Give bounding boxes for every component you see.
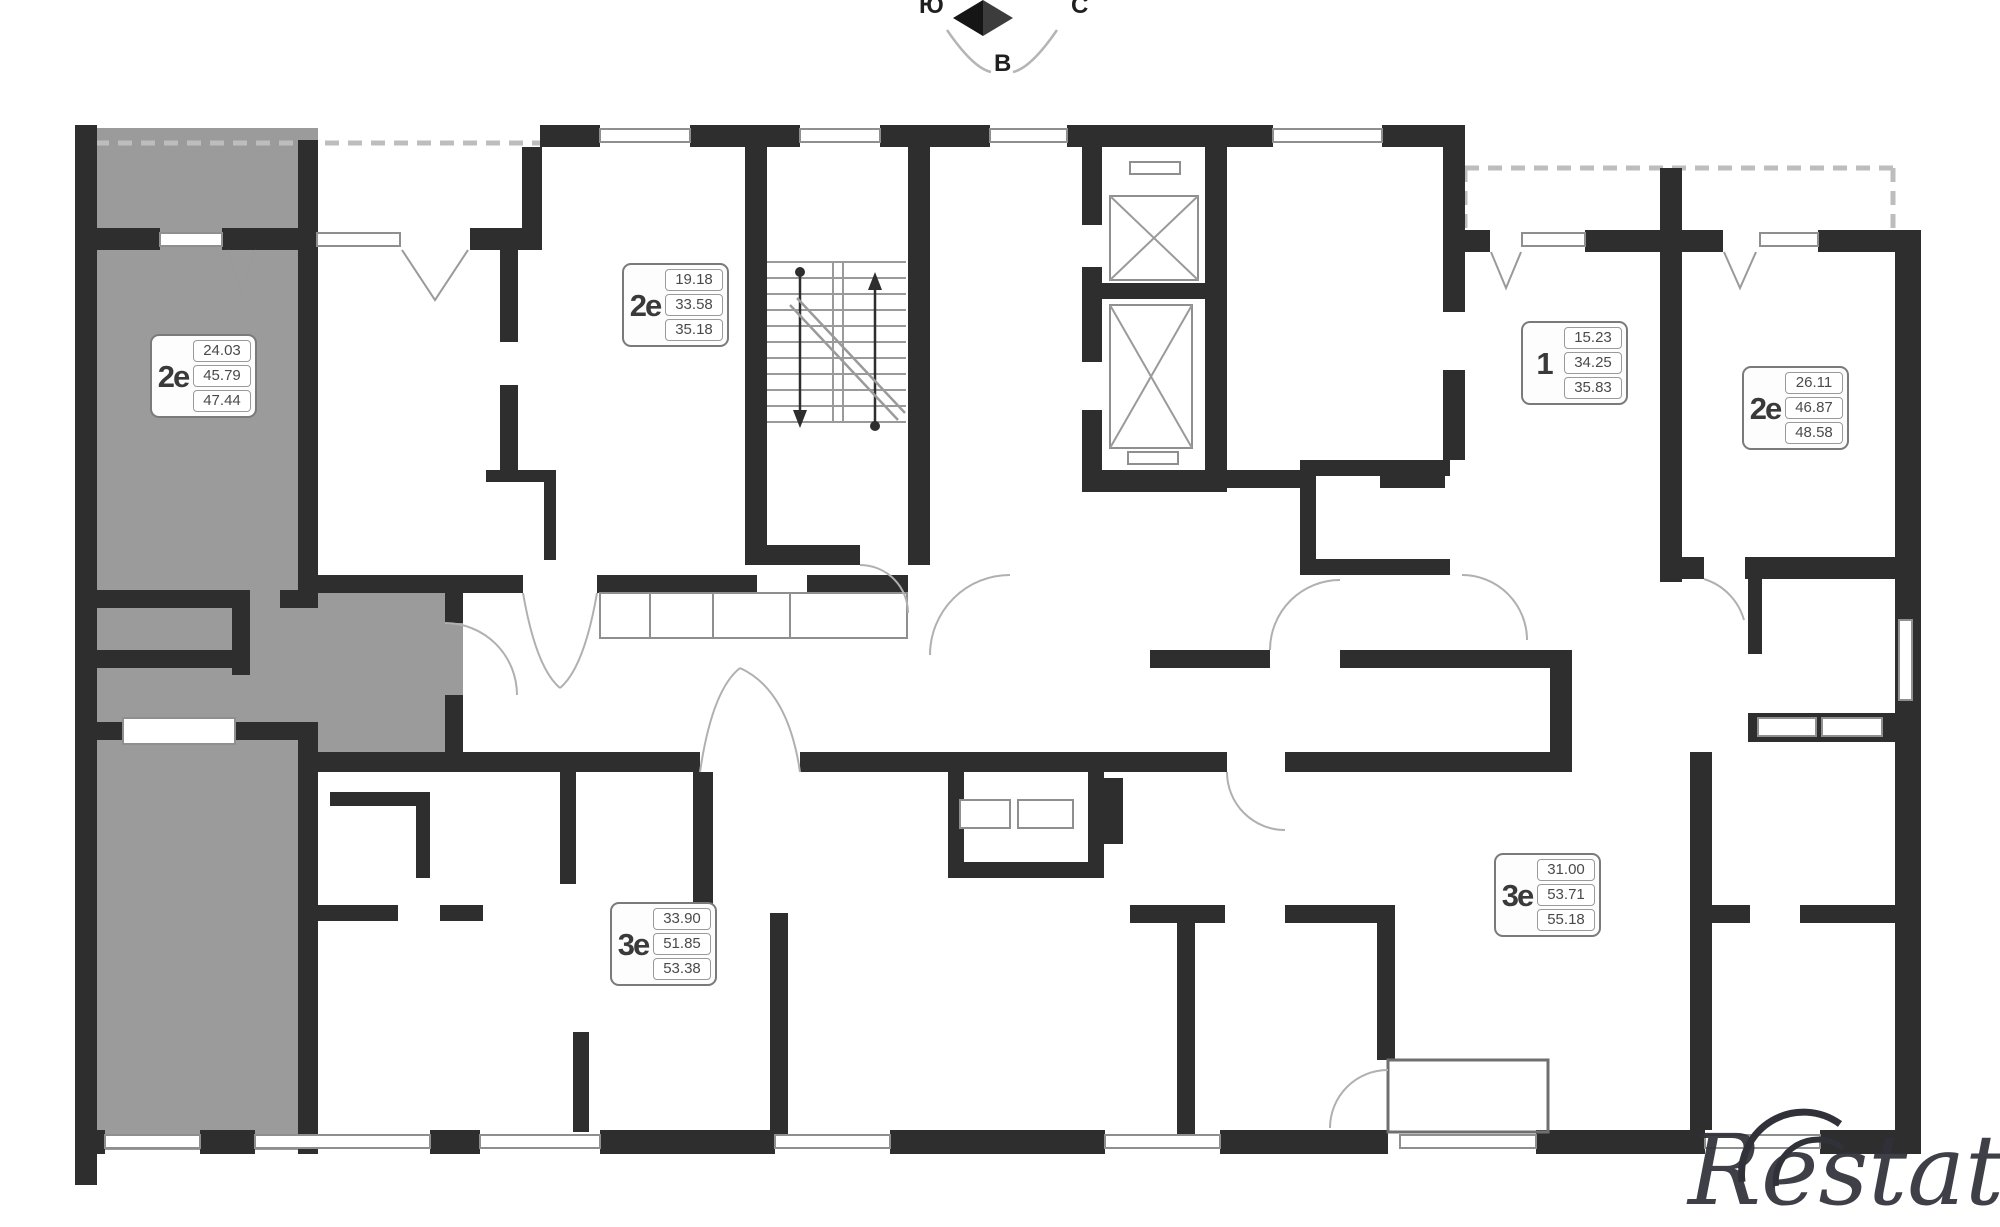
apartment-label-far-right: 2е 26.11 46.87 48.58 [1742,366,1849,450]
apartment-type: 2е [156,361,190,392]
floor-plan-page: Ю С В 2е 24.03 45.79 47.44 2е 19.18 33.5… [0,0,2000,1223]
apartment-type: 3е [1500,880,1534,911]
area-value: 34.25 [1564,352,1622,374]
area-value: 35.18 [665,319,723,341]
staircase [767,262,906,431]
apartment-areas: 26.11 46.87 48.58 [1785,372,1843,444]
apartment-label-top-right: 1 15.23 34.25 35.83 [1521,321,1628,405]
area-value: 48.58 [1785,422,1843,444]
area-value: 53.38 [653,958,711,980]
compass-label-east: В [994,50,1011,78]
apartment-areas: 19.18 33.58 35.18 [665,269,723,341]
apartment-label-bottom-right: 3е 31.00 53.71 55.18 [1494,853,1601,937]
area-value: 46.87 [1785,397,1843,419]
apartment-type: 1 [1527,348,1561,379]
area-value: 53.71 [1537,884,1595,906]
area-value: 31.00 [1537,859,1595,881]
apartment-type: 2е [1748,393,1782,424]
area-value: 55.18 [1537,909,1595,931]
apartment-areas: 24.03 45.79 47.44 [193,340,251,412]
elevator-shaft-small [1110,162,1198,280]
compass-label-south: Ю [919,0,944,20]
area-value: 33.90 [653,908,711,930]
compass: Ю С В [895,0,1115,86]
apartment-label-top-middle: 2е 19.18 33.58 35.18 [622,263,729,347]
elevator-shafts [1110,162,1198,464]
area-value: 35.83 [1564,377,1622,399]
recessed-balcony [1388,1060,1548,1132]
area-value: 15.23 [1564,327,1622,349]
area-value: 45.79 [193,365,251,387]
area-value: 19.18 [665,269,723,291]
area-value: 24.03 [193,340,251,362]
area-value: 26.11 [1785,372,1843,394]
apartment-label-bottom-middle: 3е 33.90 51.85 53.38 [610,902,717,986]
compass-label-north: С [1071,0,1088,20]
area-value: 47.44 [193,390,251,412]
stair-steps [767,262,906,422]
apartment-areas: 33.90 51.85 53.38 [653,908,711,980]
apartment-type: 3е [616,929,650,960]
balcony-parapet-dashes [95,143,1893,228]
apartment-type: 2е [628,290,662,321]
highlighted-apartment-fill [75,128,463,1150]
area-value: 33.58 [665,294,723,316]
apartment-areas: 15.23 34.25 35.83 [1564,327,1622,399]
apartment-areas: 31.00 53.71 55.18 [1537,859,1595,931]
area-value: 51.85 [653,933,711,955]
floor-plan-drawing [0,0,2000,1223]
elevator-shaft-large [1110,305,1192,464]
apartment-label-left-highlighted: 2е 24.03 45.79 47.44 [150,334,257,418]
